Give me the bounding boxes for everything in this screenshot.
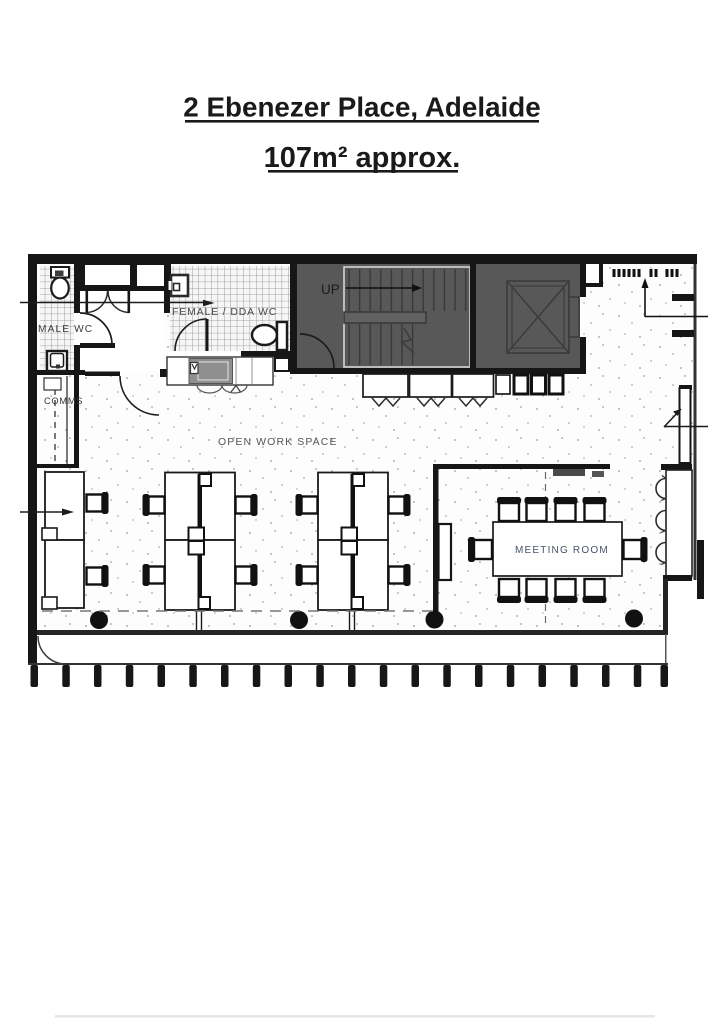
svg-text:MALE WC: MALE WC xyxy=(38,324,93,335)
svg-text:MEETING ROOM: MEETING ROOM xyxy=(515,545,609,556)
svg-text:FEMALE / DDA WC: FEMALE / DDA WC xyxy=(172,307,277,318)
svg-text:OPEN WORK SPACE: OPEN WORK SPACE xyxy=(218,436,338,448)
svg-text:COMMS: COMMS xyxy=(44,396,83,406)
svg-text:UP: UP xyxy=(321,282,340,297)
svg-text:2 Ebenezer Place, Adelaide: 2 Ebenezer Place, Adelaide xyxy=(183,92,540,123)
svg-text:107m² approx.: 107m² approx. xyxy=(264,142,461,174)
